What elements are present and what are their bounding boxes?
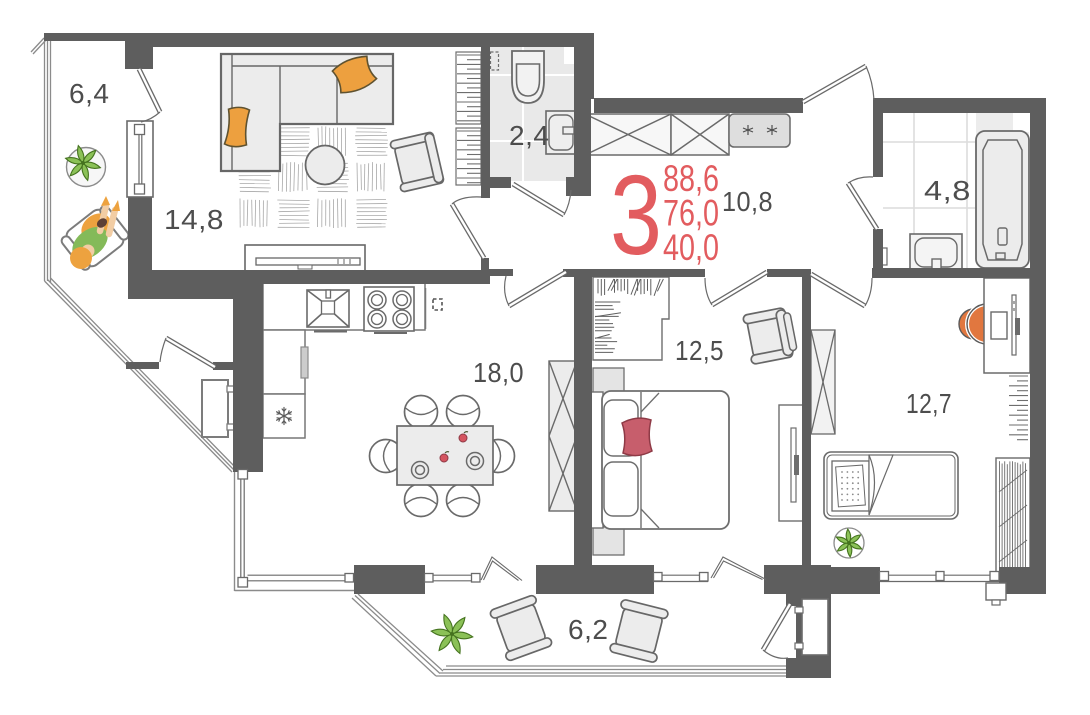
svg-text:12,5: 12,5 [675,335,724,366]
svg-text:14,8: 14,8 [164,204,224,235]
svg-text:40,0: 40,0 [663,227,719,268]
svg-text:3: 3 [610,152,662,278]
svg-text:12,7: 12,7 [906,388,952,419]
svg-text:10,8: 10,8 [722,186,773,217]
svg-text:6,2: 6,2 [568,614,608,645]
svg-text:2,4: 2,4 [509,120,549,151]
svg-text:4,8: 4,8 [924,175,971,206]
svg-text:6,4: 6,4 [69,78,109,109]
svg-text:18,0: 18,0 [473,357,524,388]
